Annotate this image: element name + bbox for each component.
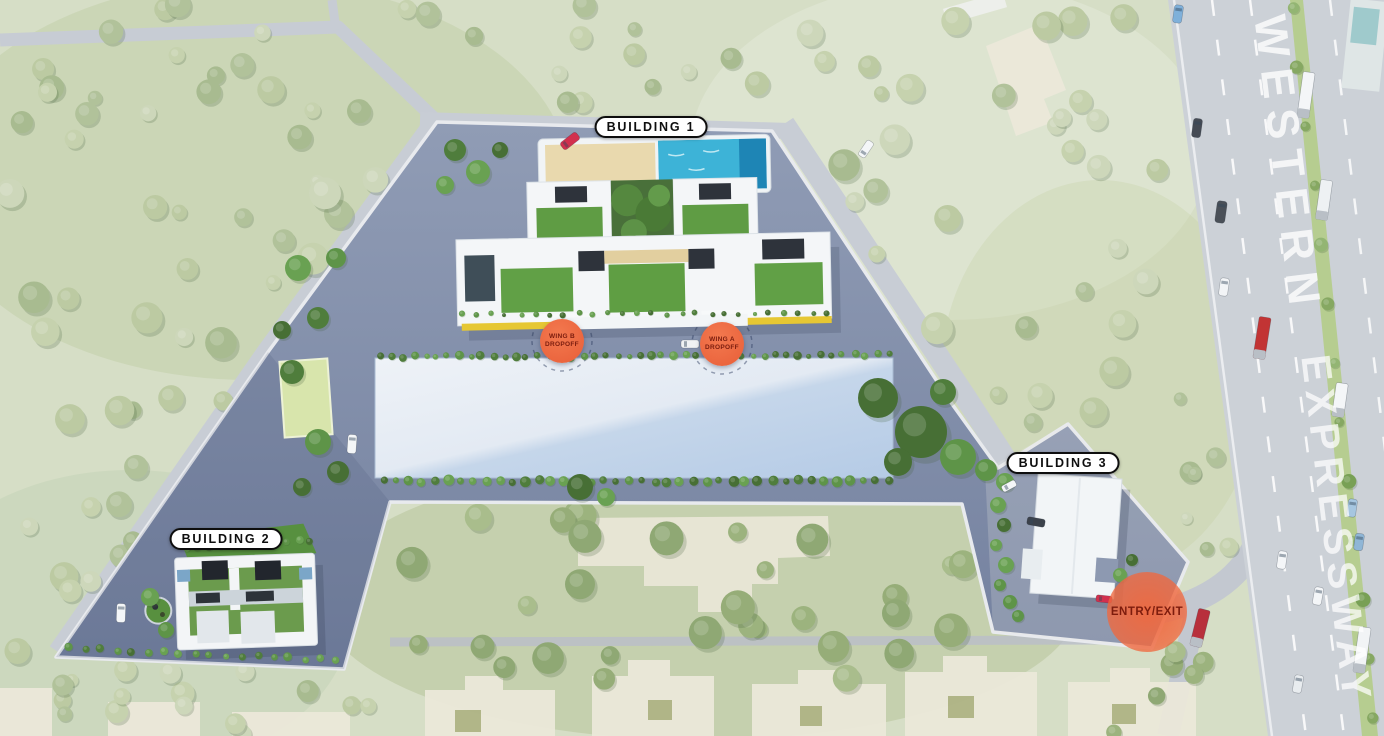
building-2-label[interactable]: BUILDING 2 [170,528,283,550]
entry-exit-text: ENTRY/EXIT [1111,606,1183,618]
wing-a-line2: DROPOFF [705,344,739,352]
site-plan: BUILDING 1 BUILDING 2 BUILDING 3 WING B … [0,0,1384,736]
wing-b-dropoff-marker: WING B DROPOFF [540,319,584,363]
building-3-label-text: BUILDING 3 [1019,456,1108,470]
building-2-label-text: BUILDING 2 [182,532,271,546]
wing-b-line2: DROPOFF [545,341,579,349]
wing-a-line1: WING A [709,336,735,344]
wing-a-dropoff-marker: WING A DROPOFF [700,322,744,366]
wing-b-line1: WING B [549,333,575,341]
building-1-label-text: BUILDING 1 [607,120,696,134]
entry-exit-marker: ENTRY/EXIT [1107,572,1187,652]
podium-deck [375,358,893,478]
building-3-label[interactable]: BUILDING 3 [1007,452,1120,474]
building-1-label[interactable]: BUILDING 1 [595,116,708,138]
